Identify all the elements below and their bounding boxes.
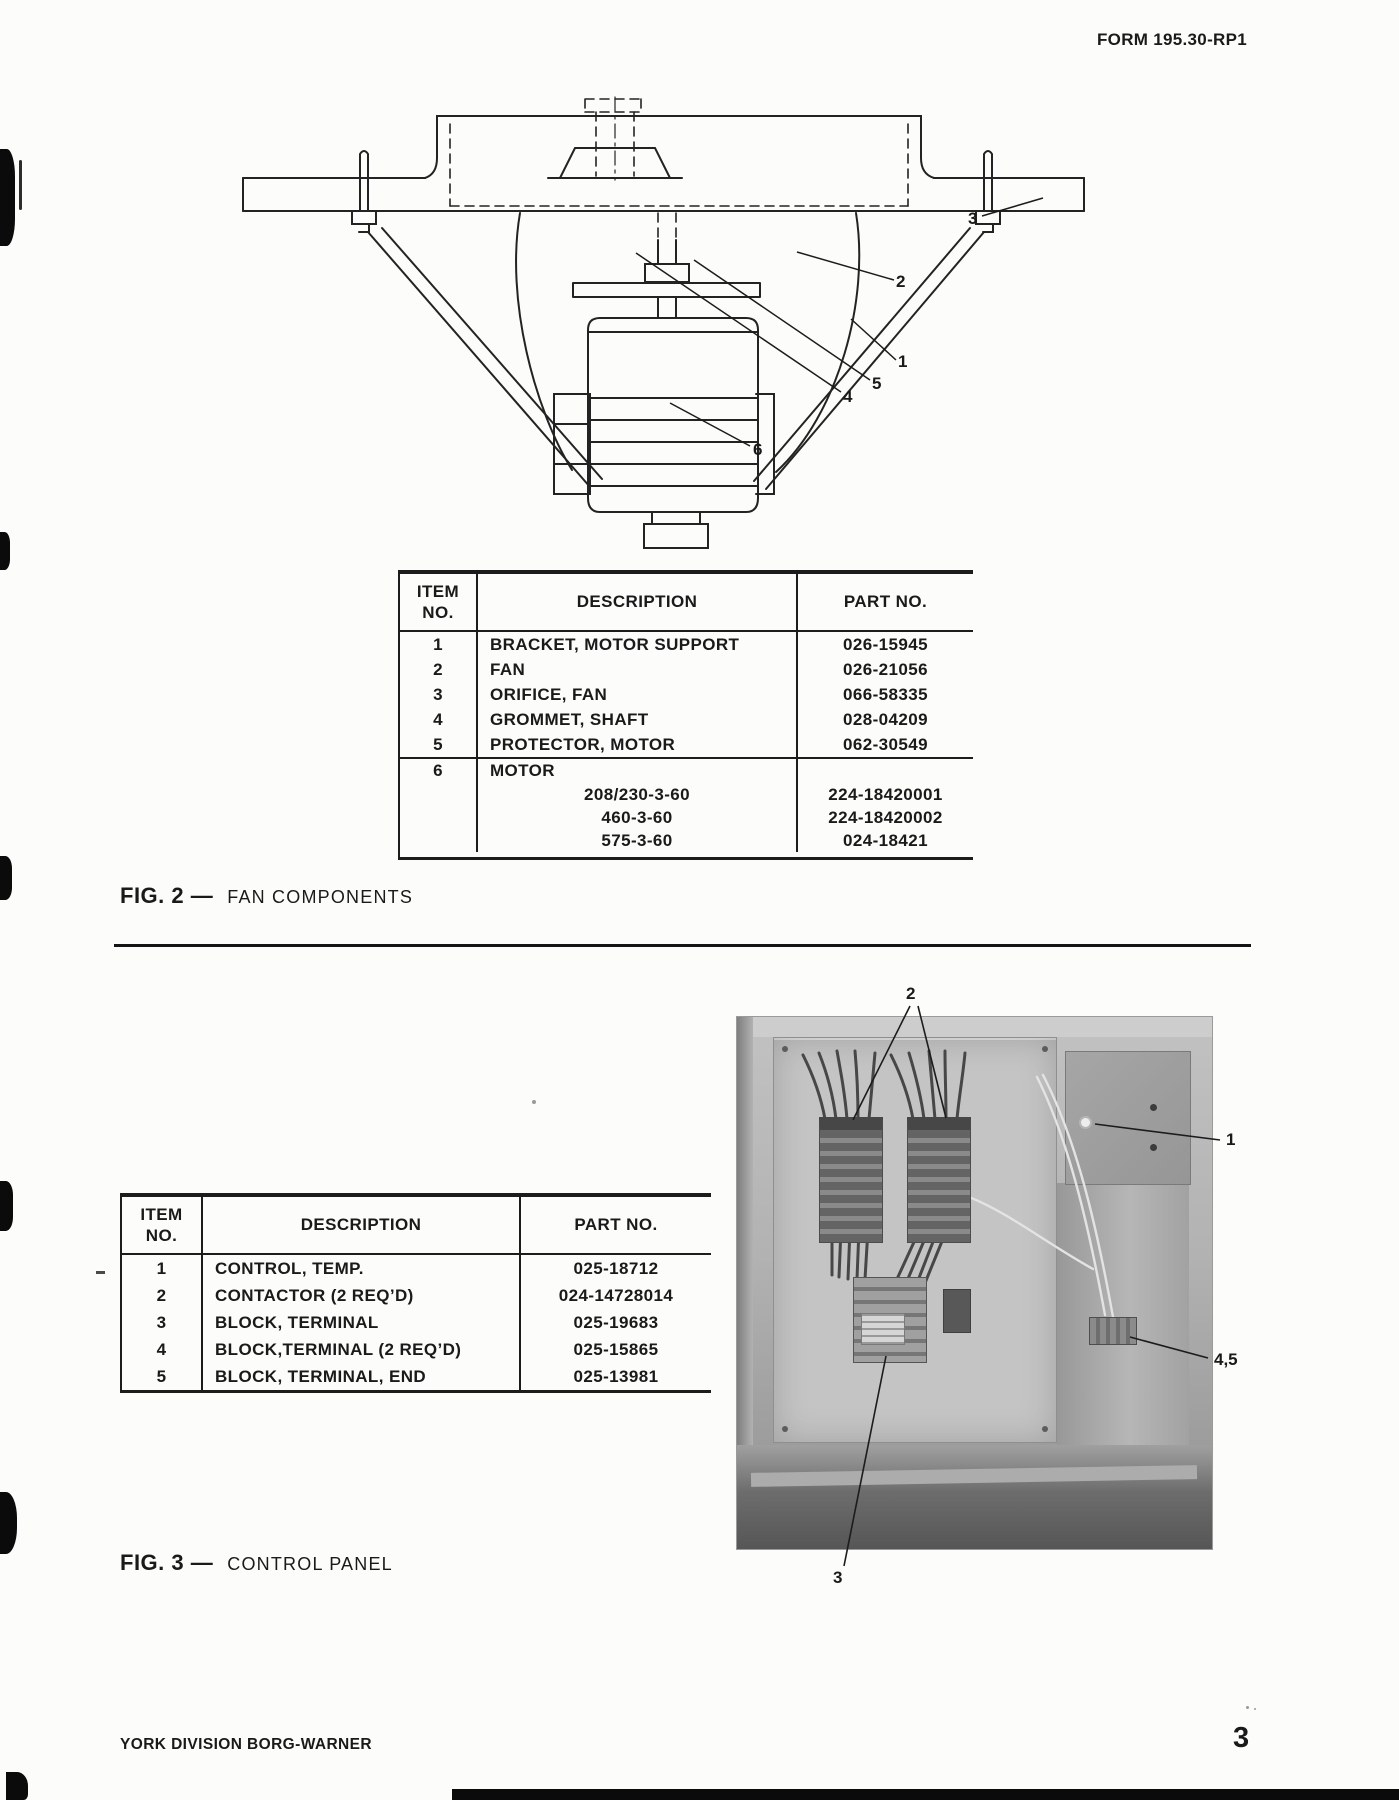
manual-page: FORM 195.30-RP1: [0, 0, 1399, 1800]
fig3-callout-3: 3: [833, 1568, 842, 1588]
binding-mark: [0, 856, 12, 900]
fig2-callout-5: 5: [872, 374, 881, 394]
fig3-callout-45: 4,5: [1214, 1350, 1238, 1370]
table-row: 1 BRACKET, MOTOR SUPPORT 026-15945: [400, 632, 973, 657]
contactor-right: [907, 1117, 971, 1243]
binding-mark: [0, 532, 10, 570]
cell-description: BLOCK, TERMINAL, END: [203, 1363, 521, 1390]
cell-part: 026-21056: [798, 657, 973, 682]
cell-description: 575-3-60: [478, 829, 798, 852]
fig2-callout-1: 1: [898, 352, 907, 372]
table-row: 1 CONTROL, TEMP. 025-18712: [122, 1255, 711, 1282]
cell-description: CONTROL, TEMP.: [203, 1255, 521, 1282]
cell-description: ORIFICE, FAN: [478, 682, 798, 707]
fig2-callout-4: 4: [843, 387, 852, 407]
binding-mark: [0, 1181, 13, 1231]
table-row: 208/230-3-60 224-18420001: [400, 783, 973, 806]
scan-edge-bar: [452, 1789, 1399, 1800]
header-item-no: ITEM NO.: [122, 1197, 203, 1253]
cell-part: 025-19683: [521, 1309, 711, 1336]
cell-item: 1: [400, 632, 478, 657]
table-header-row: ITEM NO. DESCRIPTION PART NO.: [122, 1197, 711, 1255]
scan-speck: [532, 1100, 536, 1104]
table-row: 5 BLOCK, TERMINAL, END 025-13981: [122, 1363, 711, 1390]
cell-description: BRACKET, MOTOR SUPPORT: [478, 632, 798, 657]
page-number: 3: [1233, 1722, 1249, 1755]
fig2-callout-6: 6: [753, 440, 762, 460]
fig3-caption-title: CONTROL PANEL: [227, 1554, 393, 1574]
fig3-callout-2: 2: [906, 984, 915, 1004]
cell-item: [400, 829, 478, 852]
section-divider: [114, 944, 1251, 947]
cell-part: 025-18712: [521, 1255, 711, 1282]
table-row: 575-3-60 024-18421: [400, 829, 973, 852]
cell-item: 3: [400, 682, 478, 707]
table-row: 4 GROMMET, SHAFT 028-04209: [400, 707, 973, 732]
motor-group-rows: 6 MOTOR 208/230-3-60 224-18420001 460-3-…: [400, 757, 973, 857]
cell-part: 062-30549: [798, 732, 973, 757]
contactor-left: [819, 1117, 883, 1243]
binding-mark: [0, 1492, 17, 1554]
cell-description: GROMMET, SHAFT: [478, 707, 798, 732]
cell-description: BLOCK,TERMINAL (2 REQ’D): [203, 1336, 521, 1363]
fig2-caption-number: FIG. 2 —: [120, 883, 213, 908]
header-part-no: PART NO.: [521, 1197, 711, 1253]
cell-part: 024-14728014: [521, 1282, 711, 1309]
fig3-caption: FIG. 3 —CONTROL PANEL: [120, 1550, 393, 1576]
cell-part: 224-18420002: [798, 806, 973, 829]
table-row: 2 FAN 026-21056: [400, 657, 973, 682]
cell-part: 028-04209: [798, 707, 973, 732]
relay-box: [943, 1289, 971, 1333]
fig2-callout-2: 2: [896, 272, 905, 292]
cell-item: [400, 783, 478, 806]
control-panel-photo: [737, 1017, 1212, 1549]
cell-description: MOTOR: [478, 759, 798, 783]
cell-description: 460-3-60: [478, 806, 798, 829]
cell-item: 2: [122, 1282, 203, 1309]
cell-part: 224-18420001: [798, 783, 973, 806]
cell-item: 5: [400, 732, 478, 757]
table-row: 6 MOTOR: [400, 759, 973, 783]
fig3-callout-1: 1: [1226, 1130, 1235, 1150]
header-item-no: ITEM NO.: [400, 574, 478, 630]
table-row: 460-3-60 224-18420002: [400, 806, 973, 829]
scan-speck: [1254, 1708, 1256, 1710]
cell-description: CONTACTOR (2 REQ’D): [203, 1282, 521, 1309]
cell-part: 024-18421: [798, 829, 973, 852]
cell-description: PROTECTOR, MOTOR: [478, 732, 798, 757]
table-row: 4 BLOCK,TERMINAL (2 REQ’D) 025-15865: [122, 1336, 711, 1363]
cell-description: FAN: [478, 657, 798, 682]
scan-speck: [1246, 1706, 1249, 1709]
header-description: DESCRIPTION: [478, 574, 798, 630]
table-row: 3 BLOCK, TERMINAL 025-19683: [122, 1309, 711, 1336]
fig3-parts-table: ITEM NO. DESCRIPTION PART NO. 1 CONTROL,…: [120, 1193, 711, 1393]
fig2-caption: FIG. 2 —FAN COMPONENTS: [120, 883, 413, 909]
cell-part: 026-15945: [798, 632, 973, 657]
cell-description: 208/230-3-60: [478, 783, 798, 806]
fig3-caption-number: FIG. 3 —: [120, 1550, 213, 1575]
cell-item: 1: [122, 1255, 203, 1282]
fig2-parts-table: ITEM NO. DESCRIPTION PART NO. 1 BRACKET,…: [398, 570, 973, 860]
table-header-row: ITEM NO. DESCRIPTION PART NO.: [400, 574, 973, 632]
wiring-label: [861, 1313, 905, 1345]
cell-item: [400, 806, 478, 829]
cell-part: 025-15865: [521, 1336, 711, 1363]
cell-part: 066-58335: [798, 682, 973, 707]
fig2-caption-title: FAN COMPONENTS: [227, 887, 413, 907]
cell-item: 4: [122, 1336, 203, 1363]
binding-mark: [0, 149, 15, 246]
cell-description: BLOCK, TERMINAL: [203, 1309, 521, 1336]
cell-item: 5: [122, 1363, 203, 1390]
fan-assembly-drawing: [0, 0, 1399, 620]
binding-mark: [19, 160, 22, 210]
cell-part: [798, 759, 973, 783]
fig2-callout-3: 3: [968, 209, 977, 229]
table-row: 5 PROTECTOR, MOTOR 062-30549: [400, 732, 973, 757]
footer-publisher: YORK DIVISION BORG-WARNER: [120, 1736, 372, 1754]
cabinet-floor: [737, 1445, 1212, 1549]
terminal-blocks-45: [1089, 1317, 1137, 1345]
table-row: 3 ORIFICE, FAN 066-58335: [400, 682, 973, 707]
cell-item: 4: [400, 707, 478, 732]
cell-item: 2: [400, 657, 478, 682]
form-number: FORM 195.30-RP1: [1097, 30, 1247, 50]
cell-item: 3: [122, 1309, 203, 1336]
table-row: 2 CONTACTOR (2 REQ’D) 024-14728014: [122, 1282, 711, 1309]
header-description: DESCRIPTION: [203, 1197, 521, 1253]
cell-item: 6: [400, 759, 478, 783]
binding-mark: [6, 1772, 28, 1800]
cell-part: 025-13981: [521, 1363, 711, 1390]
scan-tick: [96, 1271, 105, 1274]
header-part-no: PART NO.: [798, 574, 973, 630]
